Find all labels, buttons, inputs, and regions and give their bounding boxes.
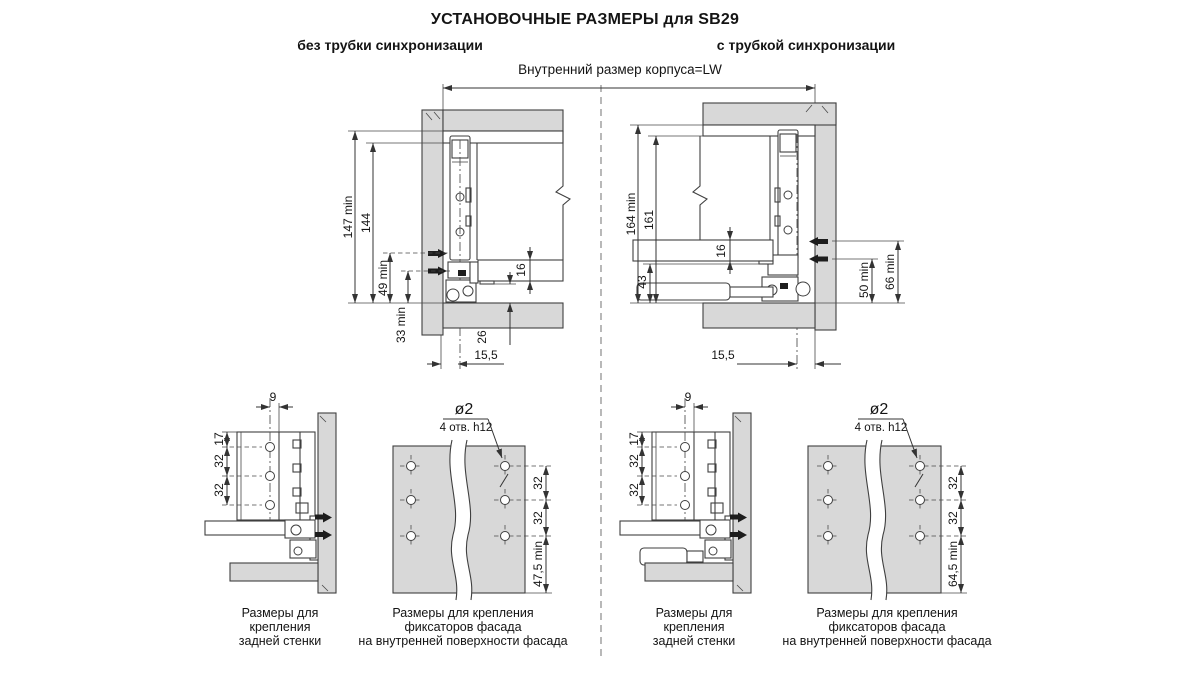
dim-32: 32 — [627, 483, 641, 497]
drawing-section-without-tube: 147 min 144 49 min 33 min 16 26 15,5 — [341, 110, 570, 369]
cabinet-side-panel — [815, 103, 836, 330]
drawing-back-wall-mounting-right: 9 17 32 32 — [620, 390, 751, 593]
back-panel — [318, 413, 336, 593]
drawer-bottom-panel — [205, 521, 290, 535]
drawing-section-with-tube: 164 min 161 16 43 50 min 66 min 15,5 — [624, 103, 905, 369]
dim-17: 17 — [627, 432, 641, 446]
dim-64-5-min: 64,5 min — [946, 541, 960, 587]
installation-diagram-page: УСТАНОВОЧНЫЕ РАЗМЕРЫ для SB29 без трубки… — [0, 0, 1200, 675]
cabinet-bottom-panel — [443, 303, 563, 328]
dim-66-min: 66 min — [883, 254, 897, 290]
dim-47-5-min: 47,5 min — [531, 541, 545, 587]
dim-32: 32 — [212, 483, 226, 497]
caption-line: фиксаторов фасада — [782, 620, 991, 634]
caption-line: на внутренней поверхности фасада — [782, 634, 991, 648]
drawing-back-wall-mounting-left: 9 17 32 32 — [205, 390, 336, 593]
caption-back-wall-left: Размеры для крепления задней стенки — [239, 606, 321, 648]
drawer-bottom-panel — [620, 521, 705, 535]
drawer-bottom-panel — [633, 240, 773, 261]
cabinet-bottom-panel — [645, 563, 733, 581]
dim-147-min: 147 min — [341, 196, 355, 239]
hole-diameter-label: ø2 — [870, 401, 889, 418]
dim-16-right: 16 — [714, 244, 728, 258]
dim-33-min: 33 min — [394, 307, 408, 343]
dim-17: 17 — [212, 432, 226, 446]
back-panel — [733, 413, 751, 593]
caption-line: крепления — [239, 620, 321, 634]
hole-diameter-label: ø2 — [455, 401, 474, 418]
drawing-facade-plate-right: ø2 4 отв. h12 32 32 64,5 min — [808, 401, 967, 600]
dim-32: 32 — [627, 454, 641, 468]
caption-back-wall-right: Размеры для крепления задней стенки — [653, 606, 735, 648]
caption-line: Размеры для крепления — [782, 606, 991, 620]
drawing-facade-plate-left: ø2 4 отв. h12 32 32 47,5 min — [393, 401, 552, 600]
caption-line: задней стенки — [239, 634, 321, 648]
caption-line: Размеры для крепления — [358, 606, 567, 620]
break-mark — [693, 136, 707, 240]
dim-9: 9 — [685, 390, 692, 404]
caption-line: Размеры для — [239, 606, 321, 620]
dim-43: 43 — [635, 275, 649, 289]
dim-50-min: 50 min — [857, 262, 871, 298]
cabinet-side-panel — [422, 110, 443, 335]
dim-144: 144 — [359, 213, 373, 233]
caption-line: крепления — [653, 620, 735, 634]
caption-line: фиксаторов фасада — [358, 620, 567, 634]
caption-facade-left: Размеры для крепления фиксаторов фасада … — [358, 606, 567, 648]
cabinet-bottom-panel — [230, 563, 318, 581]
dim-164-min: 164 min — [624, 193, 638, 236]
dim-16-left: 16 — [514, 263, 528, 277]
dim-15-5-left: 15,5 — [474, 348, 498, 362]
dim-9: 9 — [270, 390, 277, 404]
drawer-slide-mechanism — [446, 136, 476, 369]
caption-facade-right: Размеры для крепления фиксаторов фасада … — [782, 606, 991, 648]
caption-line: задней стенки — [653, 634, 735, 648]
holes-note: 4 отв. h12 — [855, 422, 908, 434]
caption-line: Размеры для — [653, 606, 735, 620]
dim-32: 32 — [946, 511, 960, 525]
cabinet-bottom-panel — [703, 303, 815, 328]
dim-49-min: 49 min — [376, 260, 390, 296]
dim-15-5-right: 15,5 — [711, 348, 735, 362]
dim-32: 32 — [531, 476, 545, 490]
dim-32: 32 — [531, 511, 545, 525]
holes-note: 4 отв. h12 — [440, 422, 493, 434]
synchronization-tube — [637, 283, 773, 300]
caption-line: на внутренней поверхности фасада — [358, 634, 567, 648]
break-mark — [556, 131, 570, 260]
dim-32: 32 — [212, 454, 226, 468]
dim-161: 161 — [642, 210, 656, 230]
dim-26: 26 — [475, 330, 489, 344]
dim-32: 32 — [946, 476, 960, 490]
technical-drawing-layer: 147 min 144 49 min 33 min 16 26 15,5 — [0, 0, 1200, 675]
